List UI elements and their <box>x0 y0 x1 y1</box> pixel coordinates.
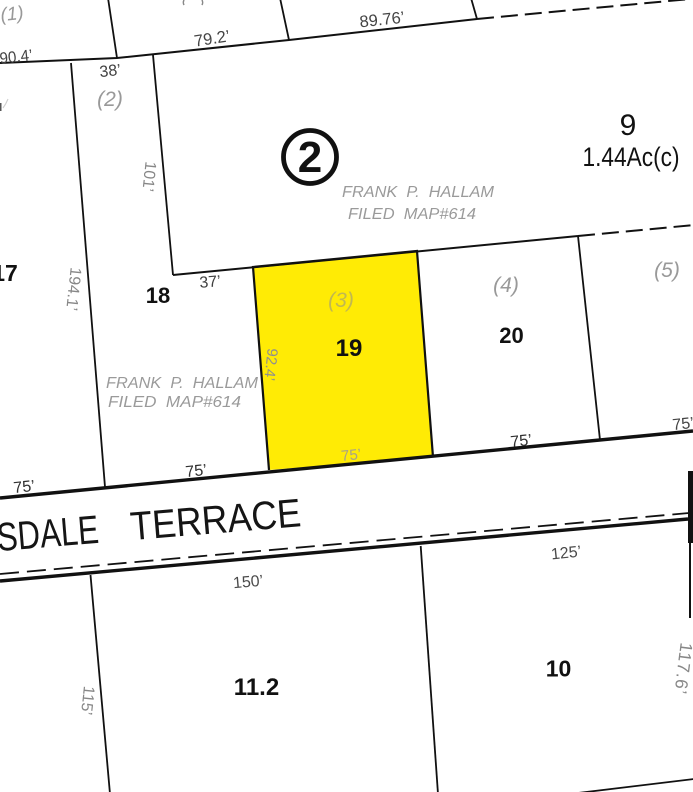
svg-text:FRANK P. HALLAM: FRANK P. HALLAM <box>106 375 258 392</box>
svg-text:(4): (4) <box>493 274 519 297</box>
svg-text:75’: 75’ <box>510 432 533 451</box>
svg-text:11.2: 11.2 <box>234 674 279 701</box>
svg-text:90.4’: 90.4’ <box>0 47 33 67</box>
svg-text:75’: 75’ <box>13 478 36 497</box>
svg-text:125’: 125’ <box>550 543 582 563</box>
svg-text:115’: 115’ <box>77 685 97 716</box>
svg-text:9: 9 <box>620 109 637 142</box>
svg-text:2: 2 <box>298 133 322 182</box>
svg-text:20: 20 <box>499 323 523 348</box>
svg-text:10: 10 <box>546 656 572 682</box>
svg-text:38’: 38’ <box>99 62 122 81</box>
svg-text:1.44Ac(c): 1.44Ac(c) <box>583 142 680 172</box>
svg-text:FILED MAP#614: FILED MAP#614 <box>348 206 476 223</box>
svg-text:18: 18 <box>146 283 170 308</box>
svg-text:75’: 75’ <box>672 415 693 434</box>
svg-text:(5): (5) <box>654 259 680 282</box>
svg-text:75’: 75’ <box>185 462 208 481</box>
svg-text:FRANK P. HALLAM: FRANK P. HALLAM <box>342 184 494 201</box>
svg-text:(2): (2) <box>97 88 123 111</box>
svg-text:150’: 150’ <box>232 573 264 593</box>
svg-text:19: 19 <box>336 335 363 362</box>
svg-text:37’: 37’ <box>199 273 222 292</box>
svg-text:75’: 75’ <box>340 446 362 465</box>
svg-text:FILED MAP#614: FILED MAP#614 <box>108 394 241 411</box>
svg-text:92.4’: 92.4’ <box>260 347 280 381</box>
svg-text:(1): (1) <box>0 3 25 26</box>
svg-text:SDALE: SDALE <box>0 508 100 560</box>
svg-text:17: 17 <box>0 260 18 286</box>
svg-text:101’: 101’ <box>138 161 158 193</box>
svg-text:(3): (3) <box>328 289 354 312</box>
